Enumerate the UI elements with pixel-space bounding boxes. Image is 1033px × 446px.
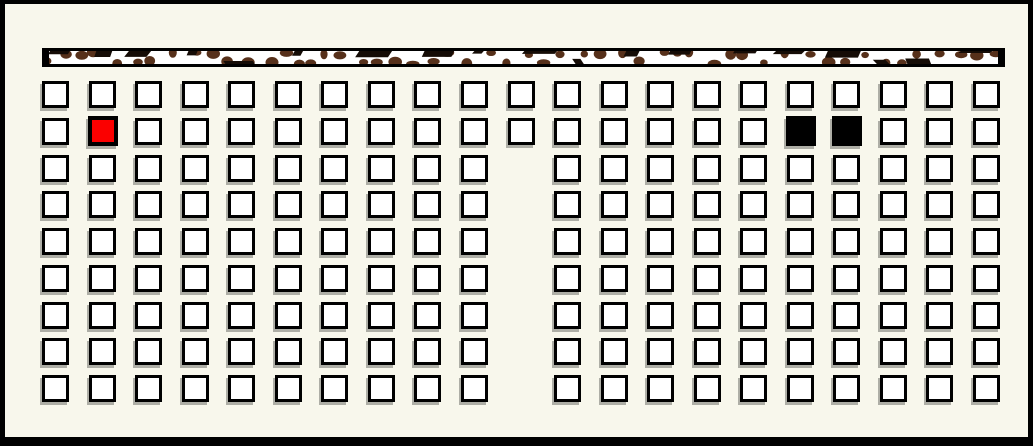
grid-cell[interactable]	[135, 191, 162, 218]
grid-cell[interactable]	[554, 338, 581, 365]
grid-cell[interactable]	[601, 155, 628, 182]
grid-cell[interactable]	[880, 375, 907, 402]
grid-cell[interactable]	[694, 302, 721, 329]
grid-cell[interactable]	[182, 118, 209, 145]
grid-cell[interactable]	[414, 118, 441, 145]
grid-cell[interactable]	[182, 265, 209, 292]
grid-cell[interactable]	[368, 191, 395, 218]
grid-cell[interactable]	[414, 155, 441, 182]
grid-cell[interactable]	[926, 155, 953, 182]
grid-cell[interactable]	[647, 375, 674, 402]
grid-cell[interactable]	[787, 191, 814, 218]
grid-cell[interactable]	[554, 118, 581, 145]
grid-cell[interactable]	[787, 338, 814, 365]
grid-cell[interactable]	[647, 118, 674, 145]
grid-cell[interactable]	[647, 155, 674, 182]
grid-cell[interactable]	[601, 338, 628, 365]
grid-cell[interactable]	[554, 81, 581, 108]
grid-cell[interactable]	[368, 118, 395, 145]
grid-cell[interactable]	[135, 228, 162, 255]
grid-cell[interactable]	[647, 265, 674, 292]
grid-cell[interactable]	[89, 81, 116, 108]
grid-cell[interactable]	[414, 228, 441, 255]
black-marked-cell-2[interactable]	[832, 116, 862, 146]
grid-cell[interactable]	[694, 118, 721, 145]
grid-cell[interactable]	[275, 302, 302, 329]
grid-cell[interactable]	[42, 118, 69, 145]
grid-cell[interactable]	[833, 81, 860, 108]
red-marked-cell[interactable]	[88, 116, 118, 146]
grid-cell[interactable]	[647, 81, 674, 108]
grid-cell[interactable]	[42, 191, 69, 218]
grid-cell[interactable]	[926, 191, 953, 218]
grid-cell[interactable]	[601, 81, 628, 108]
grid-cell[interactable]	[880, 155, 907, 182]
grid-cell[interactable]	[228, 155, 255, 182]
grid-cell[interactable]	[321, 191, 348, 218]
grid-cell[interactable]	[647, 228, 674, 255]
grid-cell[interactable]	[787, 228, 814, 255]
grid-cell[interactable]	[135, 338, 162, 365]
grid-cell[interactable]	[182, 228, 209, 255]
grid-cell[interactable]	[228, 228, 255, 255]
grid-cell[interactable]	[508, 81, 535, 108]
grid-cell[interactable]	[787, 81, 814, 108]
grid-cell[interactable]	[228, 302, 255, 329]
grid-cell[interactable]	[694, 265, 721, 292]
grid-cell[interactable]	[973, 338, 1000, 365]
grid-cell[interactable]	[89, 302, 116, 329]
grid-cell[interactable]	[740, 81, 767, 108]
grid-cell[interactable]	[601, 375, 628, 402]
grid-cell[interactable]	[461, 228, 488, 255]
grid-cell[interactable]	[880, 338, 907, 365]
grid-cell[interactable]	[275, 228, 302, 255]
grid-cell[interactable]	[461, 375, 488, 402]
grid-cell[interactable]	[461, 118, 488, 145]
grid-cell[interactable]	[461, 81, 488, 108]
grid-cell[interactable]	[601, 265, 628, 292]
grid-cell[interactable]	[601, 228, 628, 255]
grid-cell[interactable]	[182, 338, 209, 365]
grid-cell[interactable]	[740, 375, 767, 402]
grid-cell[interactable]	[461, 302, 488, 329]
grid-cell[interactable]	[554, 302, 581, 329]
grid-cell[interactable]	[89, 191, 116, 218]
grid-cell[interactable]	[89, 265, 116, 292]
grid-cell[interactable]	[554, 228, 581, 255]
grid-cell[interactable]	[321, 155, 348, 182]
grid-cell[interactable]	[182, 302, 209, 329]
grid-cell[interactable]	[740, 118, 767, 145]
grid-cell[interactable]	[740, 191, 767, 218]
grid-cell[interactable]	[275, 338, 302, 365]
grid-cell[interactable]	[368, 375, 395, 402]
grid-cell[interactable]	[42, 338, 69, 365]
grid-cell[interactable]	[880, 265, 907, 292]
grid-cell[interactable]	[694, 228, 721, 255]
grid-cell[interactable]	[89, 338, 116, 365]
grid-cell[interactable]	[321, 81, 348, 108]
grid-cell[interactable]	[973, 302, 1000, 329]
grid-cell[interactable]	[973, 81, 1000, 108]
grid-cell[interactable]	[414, 338, 441, 365]
grid-cell[interactable]	[228, 265, 255, 292]
grid-cell[interactable]	[926, 265, 953, 292]
grid-cell[interactable]	[89, 375, 116, 402]
grid-cell[interactable]	[601, 118, 628, 145]
grid-cell[interactable]	[414, 375, 441, 402]
grid-cell[interactable]	[275, 81, 302, 108]
grid-cell[interactable]	[414, 265, 441, 292]
grid-cell[interactable]	[228, 338, 255, 365]
app-window-frame	[0, 0, 1033, 446]
grid-cell[interactable]	[368, 155, 395, 182]
grid-cell[interactable]	[368, 302, 395, 329]
grid-cell[interactable]	[135, 118, 162, 145]
grid-cell[interactable]	[787, 375, 814, 402]
grid-cell[interactable]	[926, 302, 953, 329]
grid-cell[interactable]	[42, 155, 69, 182]
grid-cell[interactable]	[833, 155, 860, 182]
grid-cell[interactable]	[880, 81, 907, 108]
grid-cell[interactable]	[368, 228, 395, 255]
grid-cell[interactable]	[554, 265, 581, 292]
grid-cell[interactable]	[554, 155, 581, 182]
grid-cell[interactable]	[508, 118, 535, 145]
grid-cell[interactable]	[973, 191, 1000, 218]
grid-cell[interactable]	[42, 81, 69, 108]
grid-cell[interactable]	[694, 375, 721, 402]
grid-cell[interactable]	[275, 191, 302, 218]
grid-cell[interactable]	[275, 155, 302, 182]
grid-cell[interactable]	[880, 191, 907, 218]
grid-cell[interactable]	[414, 302, 441, 329]
grid-cell[interactable]	[42, 228, 69, 255]
grid-cell[interactable]	[833, 228, 860, 255]
grid-cell[interactable]	[182, 375, 209, 402]
grid-cell[interactable]	[601, 191, 628, 218]
grid-cell[interactable]	[973, 155, 1000, 182]
grid-cell[interactable]	[228, 118, 255, 145]
grid-cell[interactable]	[740, 302, 767, 329]
grid-cell[interactable]	[787, 302, 814, 329]
grid-cell[interactable]	[275, 118, 302, 145]
grid-cell[interactable]	[973, 375, 1000, 402]
grid-cell[interactable]	[414, 191, 441, 218]
grid-cell[interactable]	[554, 375, 581, 402]
grid-cell[interactable]	[135, 155, 162, 182]
grid-cell[interactable]	[228, 81, 255, 108]
grid-cell[interactable]	[42, 302, 69, 329]
grid-cell[interactable]	[461, 338, 488, 365]
grid-cell[interactable]	[787, 155, 814, 182]
grid-cell[interactable]	[926, 118, 953, 145]
grid-cell[interactable]	[554, 191, 581, 218]
grid-cell[interactable]	[833, 375, 860, 402]
grid-cell[interactable]	[135, 81, 162, 108]
grid-cell[interactable]	[321, 302, 348, 329]
grid-cell[interactable]	[414, 81, 441, 108]
grid-cell[interactable]	[321, 375, 348, 402]
grid-cell[interactable]	[321, 118, 348, 145]
grid-cell[interactable]	[89, 228, 116, 255]
grid-cell[interactable]	[42, 265, 69, 292]
grid-cell[interactable]	[461, 155, 488, 182]
grid-cell[interactable]	[461, 265, 488, 292]
grid-cell[interactable]	[787, 265, 814, 292]
grid-cell[interactable]	[135, 375, 162, 402]
grid-cell[interactable]	[694, 81, 721, 108]
grid-cell[interactable]	[926, 338, 953, 365]
grid-cell[interactable]	[833, 302, 860, 329]
grid-cell[interactable]	[368, 81, 395, 108]
grid-cell[interactable]	[647, 191, 674, 218]
grid-cell[interactable]	[228, 191, 255, 218]
grid-cell[interactable]	[182, 81, 209, 108]
grid-cell[interactable]	[461, 191, 488, 218]
grid-cell[interactable]	[833, 191, 860, 218]
grid-cell[interactable]	[275, 375, 302, 402]
grid-cell[interactable]	[182, 155, 209, 182]
grid-cell[interactable]	[89, 155, 116, 182]
grid-cell[interactable]	[368, 265, 395, 292]
grid-cell[interactable]	[926, 375, 953, 402]
grid-cell[interactable]	[973, 228, 1000, 255]
grid-cell[interactable]	[740, 338, 767, 365]
grid-cell[interactable]	[228, 375, 255, 402]
grid-cell[interactable]	[973, 265, 1000, 292]
grid-cell[interactable]	[926, 228, 953, 255]
grid-cell[interactable]	[880, 228, 907, 255]
grid-cell[interactable]	[368, 338, 395, 365]
grid-cell[interactable]	[321, 265, 348, 292]
grid-cell[interactable]	[135, 265, 162, 292]
grid-cell[interactable]	[601, 302, 628, 329]
grid-cell[interactable]	[275, 265, 302, 292]
grid-cell[interactable]	[880, 302, 907, 329]
grid-cell[interactable]	[740, 228, 767, 255]
grid-cell[interactable]	[694, 155, 721, 182]
black-marked-cell-1[interactable]	[786, 116, 816, 146]
grid-cell[interactable]	[694, 191, 721, 218]
grid-cell[interactable]	[740, 265, 767, 292]
grid-cell[interactable]	[42, 375, 69, 402]
grid-cell[interactable]	[833, 338, 860, 365]
grid-cell[interactable]	[647, 302, 674, 329]
grid-cell[interactable]	[321, 338, 348, 365]
cell-grid	[5, 4, 1028, 437]
grid-cell[interactable]	[926, 81, 953, 108]
grid-cell[interactable]	[647, 338, 674, 365]
grid-cell[interactable]	[135, 302, 162, 329]
grid-cell[interactable]	[740, 155, 767, 182]
grid-cell[interactable]	[694, 338, 721, 365]
grid-cell[interactable]	[973, 118, 1000, 145]
grid-cell[interactable]	[833, 265, 860, 292]
grid-cell[interactable]	[321, 228, 348, 255]
grid-cell[interactable]	[880, 118, 907, 145]
grid-cell[interactable]	[182, 191, 209, 218]
